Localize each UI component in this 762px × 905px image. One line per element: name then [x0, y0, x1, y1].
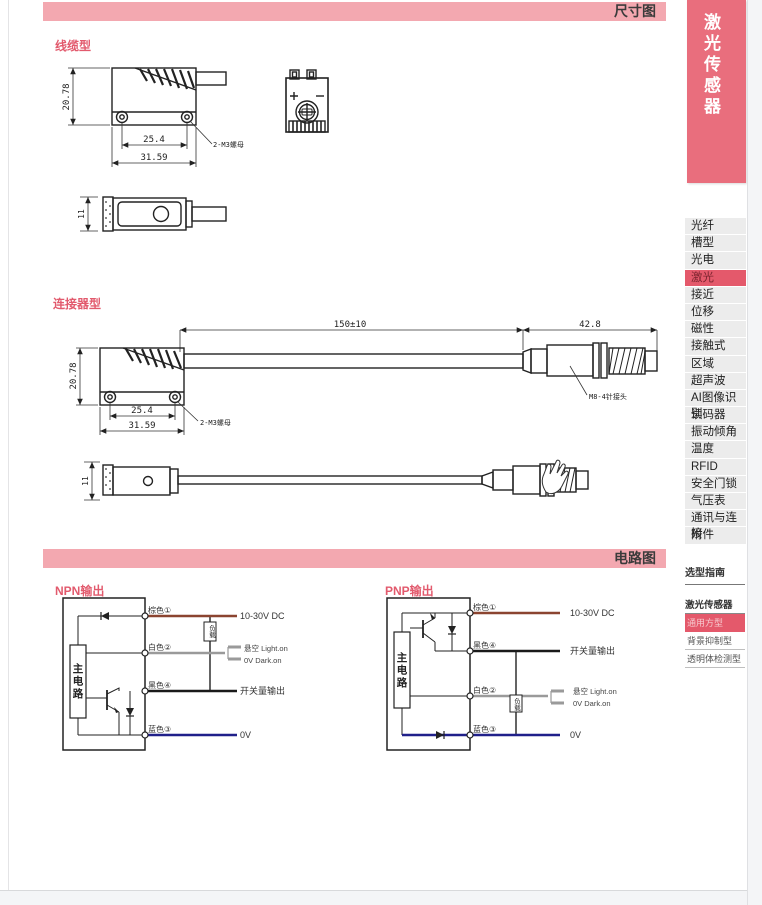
- dim-height: 20.78: [69, 362, 79, 389]
- laser-sensor-tab[interactable]: 激光传感器: [687, 0, 746, 183]
- page-left-border: [8, 0, 9, 890]
- sidebar-item-magnetic[interactable]: 磁性: [685, 321, 746, 338]
- circuit-section-title: 电路图: [43, 549, 666, 568]
- sidebar-item-vibration-tilt[interactable]: 振动倾角: [685, 424, 746, 441]
- pnp-wire4-target: 0V: [570, 730, 581, 741]
- sidebar-item-photoelectric[interactable]: 光电: [685, 252, 746, 269]
- sidebar-item-slot[interactable]: 槽型: [685, 235, 746, 252]
- sidebar-item-code-reader[interactable]: 读码器: [685, 407, 746, 424]
- connector-note: M8-4针接头: [589, 392, 627, 401]
- cable-type-label: 线缆型: [55, 37, 91, 54]
- npn-wire1-name: 棕色①: [148, 605, 171, 616]
- dimension-section-title: 尺寸图: [43, 2, 666, 21]
- catalog-page: 尺寸图 线缆型: [0, 0, 762, 905]
- pnp-wire1-name: 棕色①: [473, 602, 496, 613]
- pnp-wire2-name: 黑色④: [473, 640, 496, 651]
- sidebar-item-ai-vision[interactable]: AI图像识别: [685, 390, 746, 407]
- sidebar-item-fiber[interactable]: 光纤: [685, 218, 746, 235]
- dim-thickness: 11: [81, 476, 90, 486]
- series-item-bgs[interactable]: 背景抑制型: [685, 632, 745, 650]
- sidebar-item-safety-lock[interactable]: 安全门锁: [685, 476, 746, 493]
- sidebar-item-laser[interactable]: 激光: [685, 270, 746, 287]
- sensor-side-view: [112, 68, 226, 125]
- series-item-general-square[interactable]: 通用方型: [685, 614, 745, 632]
- dim-body-width: 31.59: [128, 421, 155, 431]
- pnp-wire2-target: 开关量输出: [570, 646, 615, 657]
- dim-cable-length: 150±10: [334, 320, 367, 330]
- pnp-wire3-name: 白色②: [473, 685, 496, 696]
- laser-sensor-tab-title: 激光传感器: [698, 13, 723, 173]
- npn-wire2-name: 白色②: [148, 642, 171, 653]
- dim-hole-pitch: 25.4: [143, 135, 165, 145]
- sidebar-item-ultrasonic[interactable]: 超声波: [685, 373, 746, 390]
- npn-wire1-target: 10-30V DC: [240, 611, 285, 622]
- sidebar-item-communication[interactable]: 通讯与连接: [685, 510, 746, 527]
- cable-type-drawing: 20.78 25.4 31.59 2-M3螺母: [50, 55, 350, 305]
- screw-note: 2-M3螺母: [200, 418, 231, 427]
- npn-wire3-target: 开关量输出: [240, 686, 285, 697]
- connector-type-label: 连接器型: [53, 295, 101, 312]
- npn-wire4-target: 0V: [240, 730, 251, 741]
- sidebar-item-area[interactable]: 区域: [685, 356, 746, 373]
- dim-body-width: 31.59: [140, 153, 167, 163]
- npn-wire2-target-1: 悬空 Light.on: [244, 643, 288, 654]
- sidebar-item-displacement[interactable]: 位移: [685, 304, 746, 321]
- sensor-side-view: [100, 343, 657, 405]
- sidebar-item-accessories[interactable]: 附件: [685, 527, 746, 544]
- connector-type-drawing: 150±10 42.8: [50, 318, 670, 518]
- sensor-front-view: [286, 70, 328, 132]
- page-right-gutter: [747, 0, 762, 905]
- sidebar-item-temperature[interactable]: 温度: [685, 441, 746, 458]
- pnp-main-circuit-label: 主电路: [394, 633, 410, 708]
- series-panel: 激光传感器 通用方型 背景抑制型 透明体检测型: [685, 597, 745, 668]
- sidebar-item-pressure-gauge[interactable]: 气压表: [685, 493, 746, 510]
- dim-connector-length: 42.8: [579, 320, 601, 330]
- selection-guide-title: 选型指南: [685, 564, 745, 585]
- sidebar-item-contact[interactable]: 接触式: [685, 338, 746, 355]
- npn-wire3-name: 黑色④: [148, 680, 171, 691]
- series-item-transparent[interactable]: 透明体检测型: [685, 650, 745, 668]
- dim-height: 20.78: [62, 83, 72, 110]
- page-bottom-gutter: [0, 890, 747, 905]
- screw-note: 2-M3螺母: [213, 140, 244, 149]
- npn-wire4-name: 蓝色③: [148, 724, 171, 735]
- pnp-wire3-target-2: 0V Dark.on: [573, 698, 611, 709]
- sidebar-item-proximity[interactable]: 接近: [685, 287, 746, 304]
- pnp-load-label: 负载: [509, 695, 522, 713]
- sensor-bottom-view: [103, 197, 226, 231]
- series-title: 激光传感器: [685, 597, 745, 614]
- circuit-section-bar: 电路图: [43, 549, 666, 568]
- dim-thickness: 11: [77, 209, 86, 219]
- npn-main-circuit-label: 主电路: [70, 646, 86, 718]
- pnp-wire3-target-1: 悬空 Light.on: [573, 686, 617, 697]
- npn-load-label: 负载: [204, 622, 217, 641]
- dimension-section-bar: 尺寸图: [43, 2, 666, 21]
- pnp-wire4-name: 蓝色③: [473, 724, 496, 735]
- sensor-bottom-view: [103, 464, 588, 496]
- npn-wire2-target-2: 0V Dark.on: [244, 655, 282, 666]
- pnp-wire1-target: 10-30V DC: [570, 608, 615, 619]
- dim-hole-pitch: 25.4: [131, 406, 153, 416]
- sidebar-item-rfid[interactable]: RFID: [685, 459, 746, 476]
- category-menu: 光纤 槽型 光电 激光 接近 位移 磁性 接触式 区域 超声波 AI图像识别 读…: [685, 218, 746, 545]
- connector-dimensions: [180, 330, 657, 352]
